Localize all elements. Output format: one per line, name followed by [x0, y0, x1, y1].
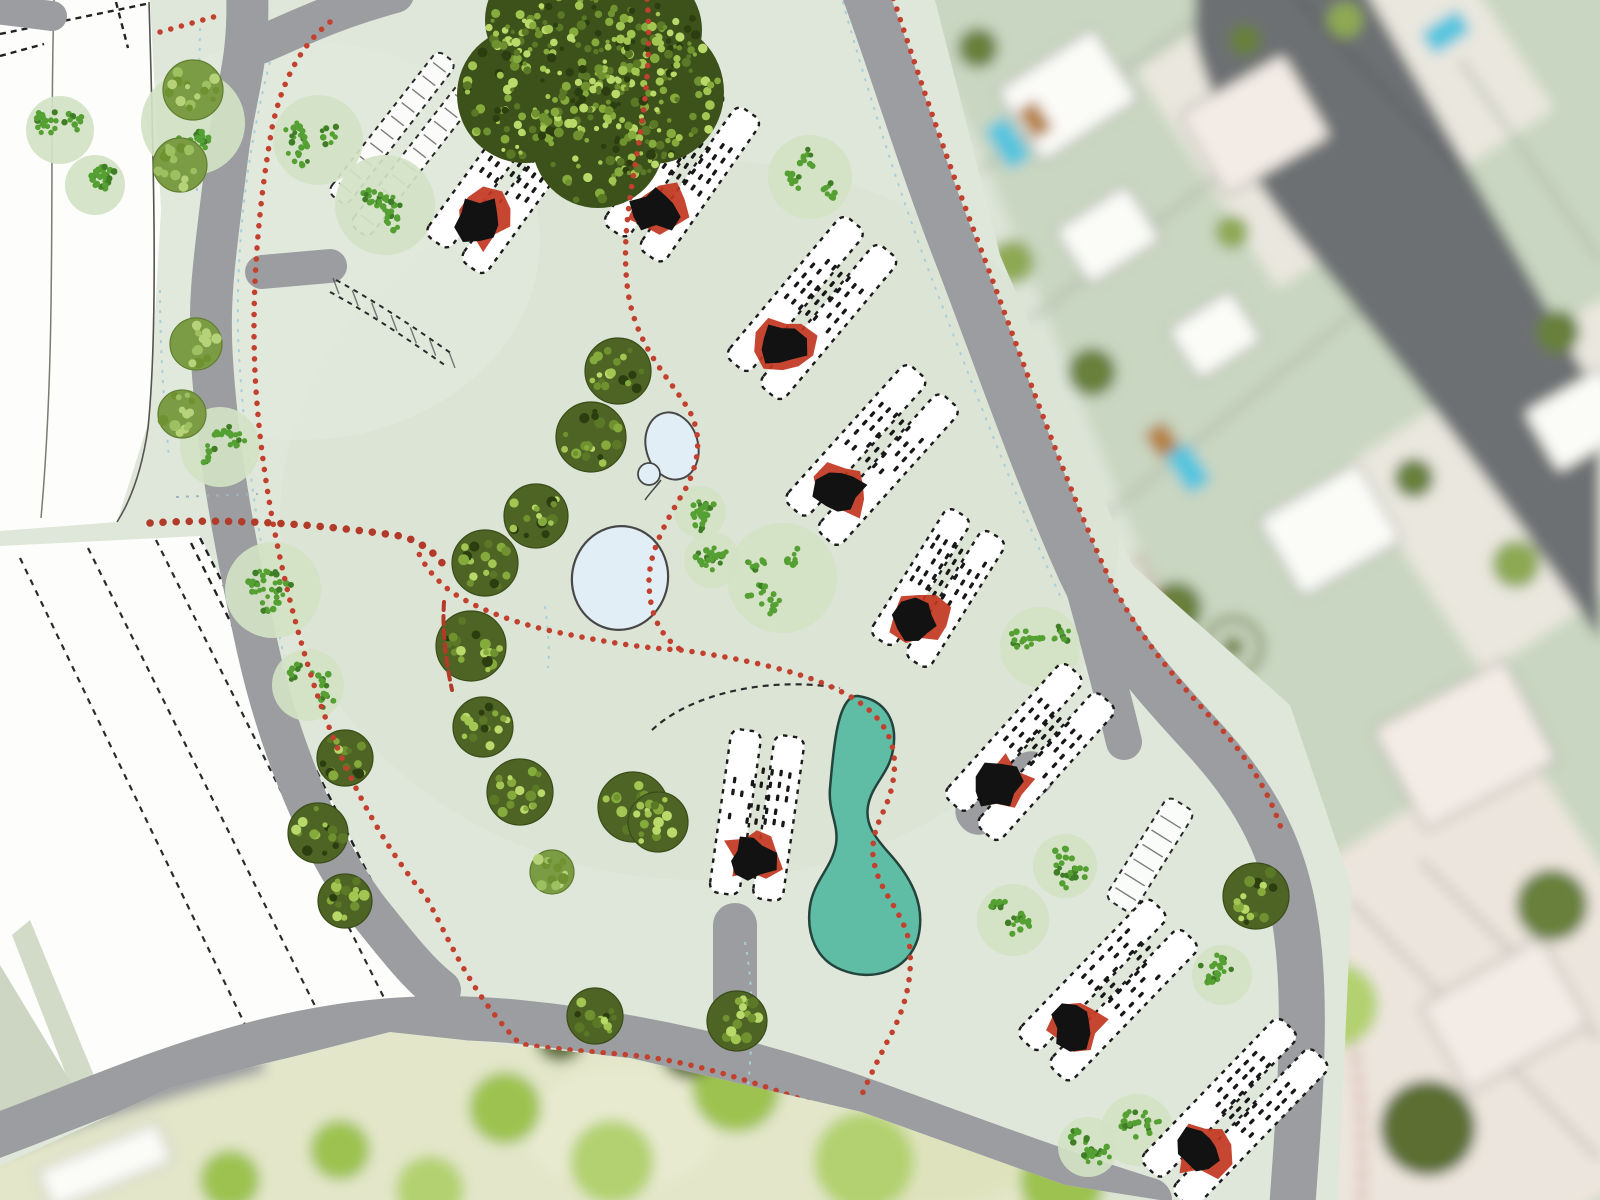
shrub-cluster: [727, 523, 837, 633]
tree-light: [530, 850, 574, 894]
shrub-cluster: [225, 542, 321, 638]
shrub-cluster: [977, 884, 1049, 956]
shrub-cluster: [272, 649, 344, 721]
tree-dark: [504, 484, 568, 548]
road-top-left-stub: [0, 8, 52, 16]
tree-dark: [556, 402, 626, 472]
masterplan-scene: [0, 0, 1600, 1200]
tree-dark: [452, 530, 518, 596]
shrub-cluster: [65, 155, 125, 215]
tree-light: [163, 60, 223, 120]
shrub-cluster: [26, 96, 94, 164]
tree-dark: [317, 730, 373, 786]
masterplan-map: [0, 0, 1600, 1200]
tree-dark: [453, 697, 513, 757]
pond-tiny: [638, 463, 660, 485]
tree-light: [153, 138, 207, 192]
tree-dark: [707, 991, 767, 1051]
shrub-cluster: [1058, 1117, 1118, 1177]
tree-dark: [585, 338, 651, 404]
shrub-cluster: [768, 135, 852, 219]
shrub-cluster: [674, 486, 726, 538]
shrub-cluster: [335, 155, 435, 255]
tree-dark: [318, 874, 372, 928]
shrub-cluster: [1192, 945, 1252, 1005]
tree-dark: [487, 759, 553, 825]
parcel-top-left: [0, 0, 161, 531]
tree-light: [158, 390, 206, 438]
tree-dark: [628, 792, 688, 852]
tree-dark: [1223, 863, 1289, 929]
tree-light: [170, 318, 222, 370]
tree-dark: [288, 803, 348, 863]
tree-dark: [567, 988, 623, 1044]
shrub-cluster: [1033, 834, 1097, 898]
road-stub-a: [262, 266, 330, 272]
